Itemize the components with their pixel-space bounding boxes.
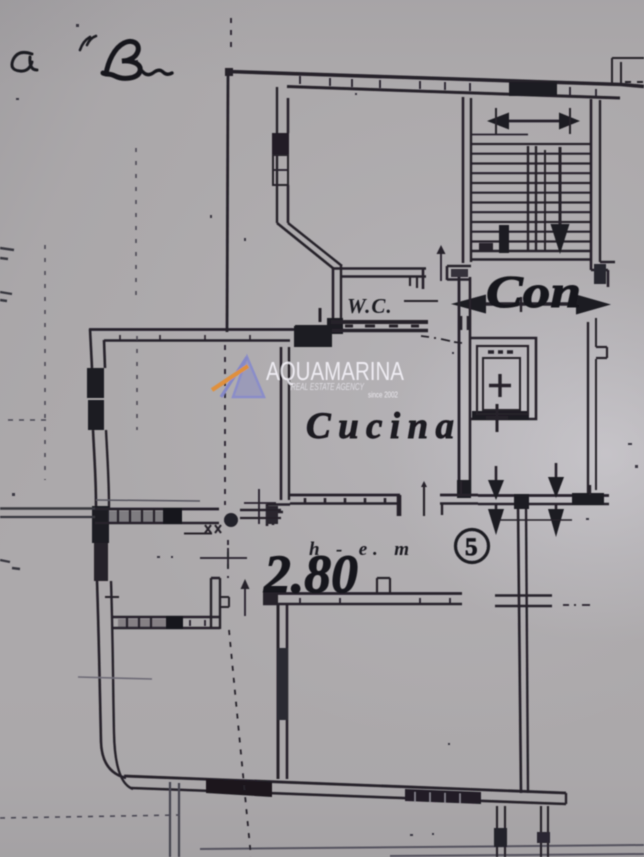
svg-text:Con: Con bbox=[486, 266, 581, 317]
svg-text:REAL ESTATE AGENCY: REAL ESTATE AGENCY bbox=[291, 382, 365, 393]
svg-text:since 2002: since 2002 bbox=[368, 390, 398, 400]
svg-text:W.C.: W.C. bbox=[347, 294, 393, 318]
svg-text:Cucina: Cucina bbox=[306, 406, 454, 447]
svg-text:5: 5 bbox=[465, 534, 478, 561]
